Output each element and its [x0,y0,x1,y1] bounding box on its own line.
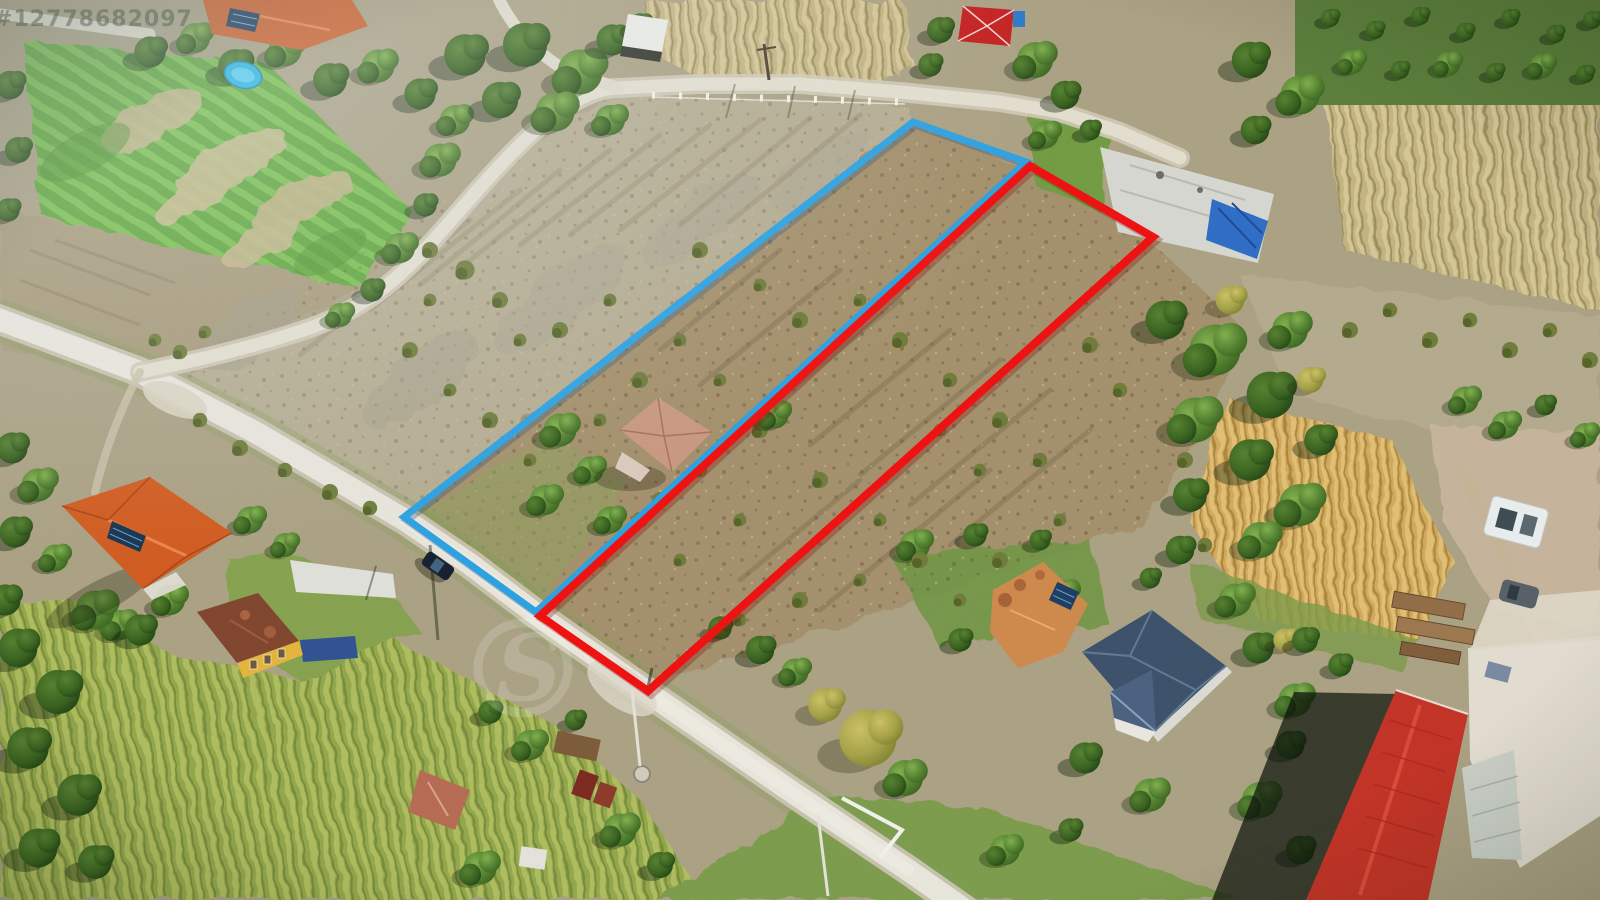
vignette-overlay [0,0,1600,900]
aerial-photo: S #12778682097 [0,0,1600,900]
aerial-photo-canvas: S #12778682097 [0,0,1600,900]
